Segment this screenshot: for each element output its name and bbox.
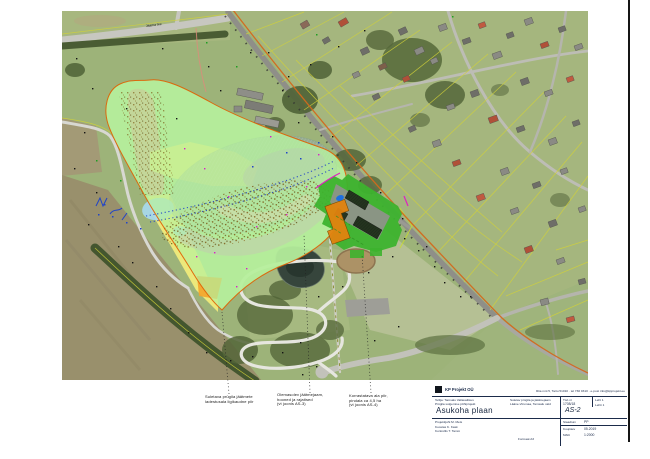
sheet-no: 1 bbox=[602, 398, 604, 402]
scale-label: Mõõt bbox=[563, 433, 570, 437]
caption-line: (vt joonis AS-3) bbox=[277, 402, 331, 407]
map-caption-3: Korrastatava ala piir, pindala ca 4,5 ha… bbox=[349, 394, 415, 408]
map-caption-2: Olemasolev jäätmejaam, hooned ja rajatis… bbox=[277, 393, 331, 407]
sheet-label: Leht 1 bbox=[595, 398, 604, 402]
date-value: 05.2019 bbox=[584, 427, 596, 431]
staff-line-3: Kontrollis T. Tamm bbox=[435, 429, 460, 433]
sheet-right-border bbox=[628, 0, 630, 442]
stage-value: PP bbox=[584, 420, 589, 424]
title-block-vrule-2 bbox=[592, 396, 593, 407]
parking-pad bbox=[345, 298, 390, 317]
sheets-label-text: Lehti bbox=[595, 403, 602, 407]
scale-value: 1:2000 bbox=[584, 433, 594, 437]
company-info: Riia mnt 5, Tartu 51010 · tel 730 0310 ·… bbox=[536, 389, 625, 393]
staff-line-1: Projektijuht M. Mets bbox=[435, 420, 462, 424]
drawing-no: AS-2 bbox=[565, 407, 581, 414]
caption-line: ladestusala ligikaudne piir bbox=[205, 400, 265, 405]
sheets-label: Lehti 1 bbox=[595, 403, 604, 407]
date-label: Kuupäev bbox=[563, 427, 575, 431]
work-no: 1708/18 bbox=[563, 402, 575, 406]
title-block: KP Projekt OÜ Riia mnt 5, Tartu 51010 · … bbox=[432, 384, 627, 446]
format-note: Formaat A3 bbox=[518, 437, 534, 441]
stage-label: Staadium bbox=[563, 420, 576, 424]
sheets-no: 1 bbox=[603, 403, 605, 407]
caption-line: (vt joonis AS-4) bbox=[349, 403, 415, 408]
staff-line-2: Koostas K. Kask bbox=[435, 425, 458, 429]
drawing-sheet: Jaama tee Suletava prügila jäätmete lade… bbox=[0, 0, 650, 459]
title-block-rule-mid bbox=[432, 418, 627, 419]
sheet-label-text: Leht bbox=[595, 398, 601, 402]
location-line-2: Lääne-Virumaa, Tamsalu vald bbox=[510, 402, 551, 406]
company-logo bbox=[435, 386, 442, 393]
company-name: KP Projekt OÜ bbox=[445, 387, 474, 392]
drawing-title: Asukoha plaan bbox=[436, 406, 493, 415]
title-block-vrule bbox=[560, 396, 561, 446]
map-caption-1: Suletava prügila jäätmete ladestusala li… bbox=[205, 395, 265, 404]
